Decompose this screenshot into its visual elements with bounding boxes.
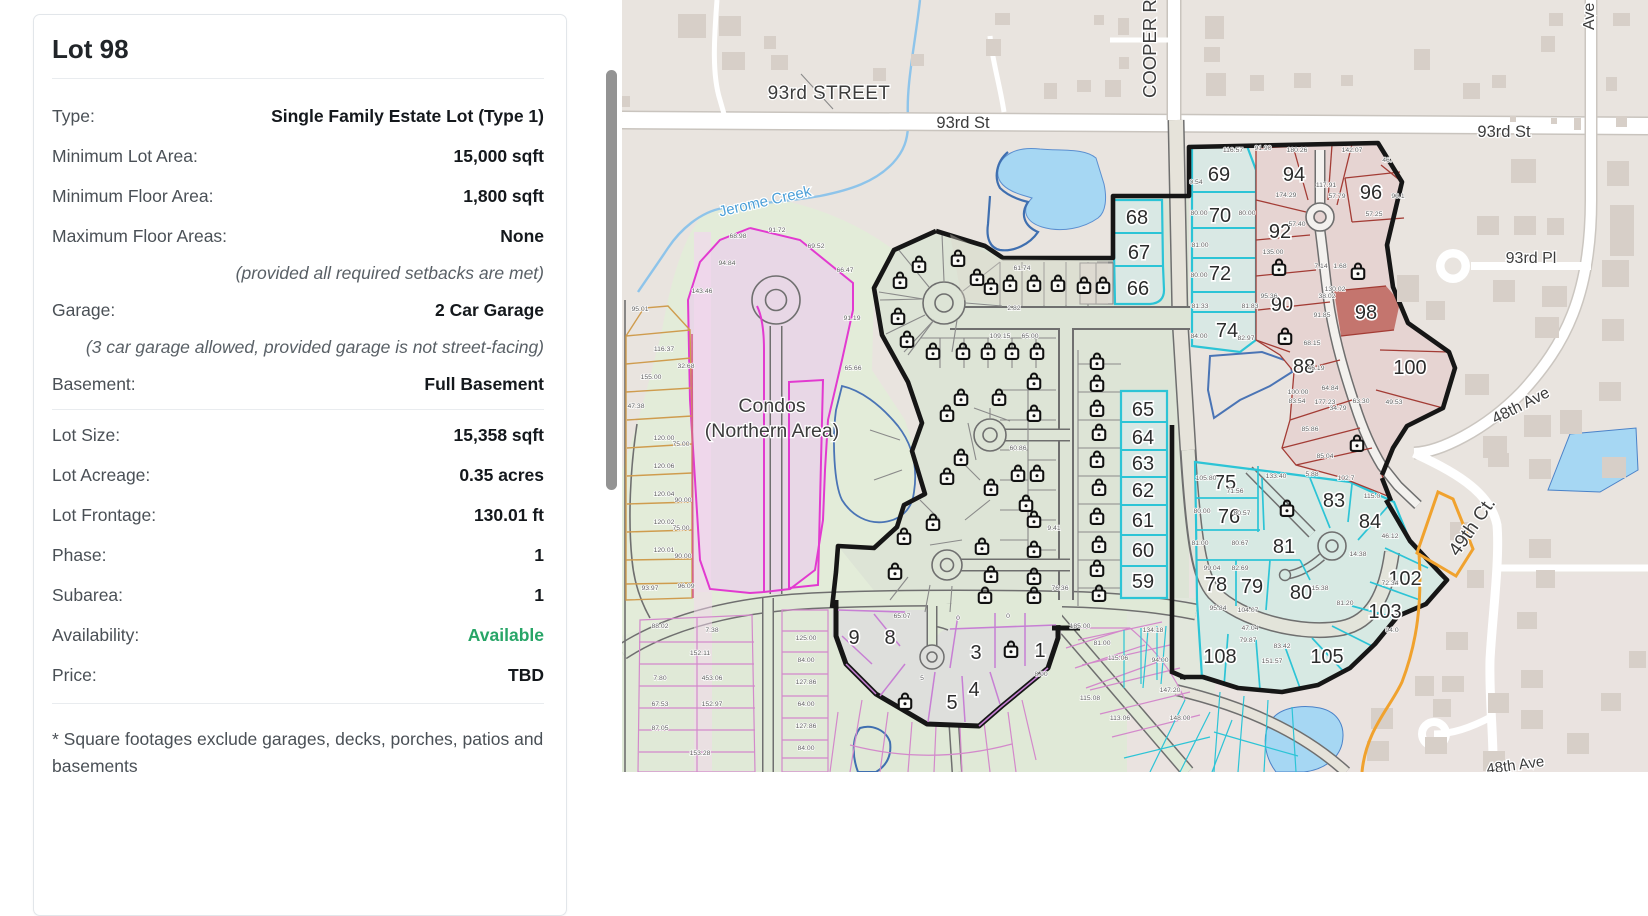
svg-text:81: 81 [1273, 536, 1295, 558]
svg-text:116.57: 116.57 [1223, 147, 1244, 154]
svg-text:68.15: 68.15 [1303, 340, 1320, 347]
svg-text:134.18: 134.18 [1143, 627, 1164, 634]
svg-text:185.00: 185.00 [1070, 623, 1091, 630]
svg-text:69: 69 [1208, 164, 1230, 186]
svg-text:93rd Pl: 93rd Pl [1506, 250, 1557, 267]
svg-text:152.97: 152.97 [702, 701, 723, 708]
svg-text:74: 74 [1216, 320, 1238, 342]
svg-text:83: 83 [1323, 490, 1345, 512]
svg-text:120.01: 120.01 [654, 547, 675, 554]
svg-text:81.00: 81.00 [1093, 640, 1110, 647]
svg-text:142.07: 142.07 [1342, 147, 1363, 154]
svg-text:105.80: 105.80 [1196, 475, 1217, 482]
svg-text:82.69: 82.69 [1231, 565, 1248, 572]
svg-text:135.00: 135.00 [1263, 249, 1284, 256]
svg-text:95.36: 95.36 [1260, 293, 1277, 300]
svg-text:65.07: 65.07 [893, 613, 910, 620]
svg-text:49.53: 49.53 [1385, 399, 1402, 406]
svg-text:100: 100 [1393, 357, 1426, 379]
svg-text:84.00: 84.00 [797, 745, 814, 752]
svg-text:115.06: 115.06 [1108, 655, 1129, 662]
svg-text:104.07: 104.07 [1238, 607, 1259, 614]
svg-text:125.00: 125.00 [796, 635, 817, 642]
svg-text:84: 84 [1359, 511, 1381, 533]
svg-text:85.86: 85.86 [1301, 426, 1318, 433]
svg-text:95.01: 95.01 [631, 306, 648, 313]
svg-text:99.04: 99.04 [1203, 565, 1220, 572]
svg-text:91.90: 91.90 [1254, 145, 1271, 152]
svg-text:68.98: 68.98 [729, 233, 746, 240]
svg-text:96.09: 96.09 [677, 583, 694, 590]
svg-text:152.11: 152.11 [690, 650, 711, 657]
svg-text:15.38: 15.38 [1311, 585, 1328, 592]
svg-text:64.00: 64.00 [797, 701, 814, 708]
svg-text:143.46: 143.46 [692, 288, 713, 295]
svg-text:80.57: 80.57 [1233, 510, 1250, 517]
svg-text:80: 80 [1290, 582, 1312, 604]
svg-text:151.57: 151.57 [1262, 658, 1283, 665]
svg-text:177.23: 177.23 [1315, 399, 1336, 406]
svg-text:109.15: 109.15 [990, 333, 1011, 340]
svg-text:63.30: 63.30 [1352, 398, 1369, 405]
svg-text:174.29: 174.29 [1276, 192, 1297, 199]
svg-text:91.19: 91.19 [843, 315, 860, 322]
svg-text:46.12: 46.12 [1381, 533, 1398, 540]
svg-text:64: 64 [1132, 427, 1154, 449]
svg-text:94.00: 94.00 [1151, 657, 1168, 664]
svg-text:453.06: 453.06 [702, 675, 723, 682]
svg-text:(Northern Area): (Northern Area) [705, 420, 839, 442]
svg-text:147.20: 147.20 [1160, 687, 1181, 694]
svg-text:46.: 46. [1382, 157, 1392, 164]
svg-text:60.86: 60.86 [1009, 445, 1026, 452]
svg-text:32.68: 32.68 [677, 363, 694, 370]
svg-text:COOPER ROAD: COOPER ROAD [1139, 0, 1160, 98]
svg-text:82.97: 82.97 [1237, 335, 1254, 342]
svg-text:0.54: 0.54 [1189, 179, 1202, 186]
svg-text:153.28: 153.28 [690, 750, 711, 757]
svg-text:87.05: 87.05 [651, 725, 668, 732]
svg-text:57.40: 57.40 [1288, 221, 1305, 228]
svg-text:93rd St: 93rd St [936, 114, 990, 132]
svg-text:108: 108 [1203, 646, 1236, 668]
svg-text:14.38: 14.38 [1349, 551, 1366, 558]
svg-text:79.87: 79.87 [1239, 637, 1256, 644]
svg-text:98: 98 [1355, 302, 1377, 324]
svg-text:81.33: 81.33 [1191, 303, 1208, 310]
svg-text:66: 66 [1127, 278, 1149, 300]
svg-text:47.38: 47.38 [627, 403, 644, 410]
svg-text:155.00: 155.00 [641, 374, 662, 381]
svg-text:115.0: 115.0 [1364, 493, 1381, 500]
svg-text:7.80: 7.80 [653, 675, 666, 682]
svg-text:7.14: 7.14 [1314, 263, 1327, 270]
svg-text:180.26: 180.26 [1287, 147, 1308, 154]
svg-text:61.74: 61.74 [1013, 265, 1030, 272]
svg-text:60: 60 [1132, 540, 1154, 562]
svg-text:64.84: 64.84 [1321, 385, 1338, 392]
svg-text:9.41: 9.41 [1047, 525, 1060, 532]
svg-text:81.83: 81.83 [1241, 303, 1258, 310]
svg-text:69.52: 69.52 [807, 243, 824, 250]
svg-text:113.06: 113.06 [1110, 715, 1131, 722]
svg-text:91.72: 91.72 [768, 227, 785, 234]
svg-text:80.00: 80.00 [1238, 210, 1255, 217]
svg-text:57.79: 57.79 [1328, 193, 1345, 200]
svg-text:120.00: 120.00 [654, 435, 675, 442]
svg-text:115.08: 115.08 [1080, 695, 1101, 702]
svg-text:5.88: 5.88 [1305, 471, 1318, 478]
svg-text:59: 59 [1132, 571, 1154, 593]
svg-text:90.00: 90.00 [674, 497, 691, 504]
svg-text:75.00: 75.00 [672, 441, 689, 448]
svg-text:84.00: 84.00 [797, 657, 814, 664]
svg-text:95.84: 95.84 [1209, 605, 1226, 612]
svg-text:100.00: 100.00 [1288, 389, 1309, 396]
svg-text:81.00: 81.00 [1191, 540, 1208, 547]
svg-text:83.54: 83.54 [1288, 398, 1305, 405]
svg-text:63: 63 [1132, 453, 1154, 475]
svg-text:0: 0 [956, 615, 960, 622]
svg-text:102.7: 102.7 [1337, 475, 1354, 482]
svg-text:1: 1 [1034, 640, 1045, 662]
svg-text:116.37: 116.37 [654, 346, 675, 353]
svg-text:91.85: 91.85 [1313, 312, 1330, 319]
svg-text:127.86: 127.86 [796, 723, 817, 730]
svg-text:80.00: 80.00 [1190, 272, 1207, 279]
svg-text:76.36: 76.36 [1051, 585, 1068, 592]
svg-text:96: 96 [1360, 182, 1382, 204]
svg-text:46.19: 46.19 [1307, 365, 1324, 372]
svg-text:Ave: Ave [1581, 3, 1598, 30]
svg-text:80.00: 80.00 [1193, 508, 1210, 515]
svg-text:94.84: 94.84 [718, 260, 735, 267]
svg-text:83.42: 83.42 [1273, 643, 1290, 650]
svg-text:68: 68 [1126, 207, 1148, 229]
svg-text:5: 5 [946, 692, 957, 714]
svg-text:130.02: 130.02 [1325, 286, 1346, 293]
svg-text:5: 5 [920, 675, 924, 682]
svg-text:80.67: 80.67 [1231, 540, 1248, 547]
svg-text:3: 3 [970, 642, 981, 664]
svg-text:57.25: 57.25 [1365, 211, 1382, 218]
svg-text:0: 0 [1006, 613, 1010, 620]
svg-text:81.20: 81.20 [1336, 600, 1353, 607]
svg-text:90.00: 90.00 [674, 553, 691, 560]
svg-text:120.06: 120.06 [654, 463, 675, 470]
svg-text:79: 79 [1241, 576, 1263, 598]
svg-text:81.00: 81.00 [1191, 242, 1208, 249]
svg-text:133.40: 133.40 [1266, 473, 1287, 480]
svg-text:120.02: 120.02 [654, 519, 675, 526]
svg-text:65.66: 65.66 [844, 365, 861, 372]
svg-text:8.00: 8.00 [1034, 671, 1047, 678]
svg-text:80.00: 80.00 [1190, 210, 1207, 217]
svg-text:34.79: 34.79 [1329, 405, 1346, 412]
svg-text:72: 72 [1209, 263, 1231, 285]
svg-text:103: 103 [1368, 601, 1401, 623]
svg-text:38.02: 38.02 [1318, 293, 1335, 300]
svg-text:61: 61 [1132, 510, 1154, 532]
svg-text:1.68: 1.68 [1333, 263, 1346, 270]
svg-text:94.0: 94.0 [1385, 627, 1398, 634]
svg-text:105: 105 [1310, 646, 1343, 668]
svg-text:71.56: 71.56 [1226, 488, 1243, 495]
svg-text:127.86: 127.86 [796, 679, 817, 686]
svg-text:84.00: 84.00 [1190, 333, 1207, 340]
svg-text:85.04: 85.04 [1316, 453, 1333, 460]
svg-text:75.00: 75.00 [672, 525, 689, 532]
svg-text:90.1: 90.1 [1391, 193, 1404, 200]
svg-text:72.34: 72.34 [1381, 580, 1398, 587]
svg-text:148.00: 148.00 [1170, 715, 1191, 722]
svg-text:8: 8 [884, 627, 895, 649]
svg-text:93rd St: 93rd St [1477, 123, 1531, 141]
svg-text:7.38: 7.38 [705, 627, 718, 634]
svg-text:67: 67 [1128, 242, 1150, 264]
svg-text:65: 65 [1132, 399, 1154, 421]
svg-text:Condos: Condos [738, 395, 805, 417]
svg-text:67.53: 67.53 [651, 701, 668, 708]
svg-text:66.47: 66.47 [836, 267, 853, 274]
svg-text:94: 94 [1283, 164, 1305, 186]
svg-text:88.02: 88.02 [651, 623, 668, 630]
svg-text:70: 70 [1209, 205, 1231, 227]
svg-text:78: 78 [1205, 574, 1227, 596]
svg-text:2.82: 2.82 [1007, 305, 1020, 312]
svg-text:120.04: 120.04 [654, 491, 675, 498]
svg-text:93.97: 93.97 [641, 585, 658, 592]
svg-text:93rd STREET: 93rd STREET [768, 83, 891, 104]
svg-text:117.91: 117.91 [1316, 182, 1337, 189]
svg-text:4: 4 [968, 679, 979, 701]
svg-text:62: 62 [1132, 480, 1154, 502]
svg-text:9: 9 [848, 627, 859, 649]
svg-text:65.00: 65.00 [1021, 333, 1038, 340]
svg-text:47.04: 47.04 [1241, 625, 1258, 632]
